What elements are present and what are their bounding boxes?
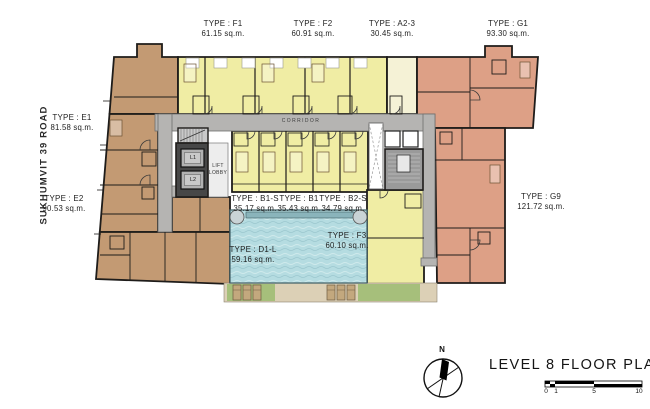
- unit-area: 60.10 sq.m.: [326, 241, 369, 251]
- unit-label-b1-s: TYPE : B1-S35.17 sq.m.: [231, 194, 279, 213]
- scale-bar: [545, 381, 642, 387]
- scale-tick-5: 5: [592, 388, 596, 395]
- unit-type: TYPE : F1: [202, 19, 245, 29]
- north-needle: [440, 359, 450, 381]
- unit-label-b1: TYPE : B135.43 sq.m.: [278, 194, 321, 213]
- landscape-patch: [358, 284, 420, 301]
- unit-type: TYPE : D1-L: [229, 245, 276, 255]
- unit-area: 59.16 sq.m.: [229, 255, 276, 265]
- lift-2-label: L2: [190, 177, 196, 183]
- unit-area: 121.72 sq.m.: [517, 202, 564, 212]
- unit-area: 35.17 sq.m.: [231, 204, 279, 214]
- lift-1-label: L1: [190, 155, 196, 161]
- unit-area: 93.30 sq.m.: [487, 29, 530, 39]
- unit-label-b2-s: TYPE : B2-S34.79 sq.m.: [319, 194, 367, 213]
- unit-label-e2: TYPE : E290.53 sq.m.: [43, 194, 86, 213]
- unit-area: 30.45 sq.m.: [369, 29, 415, 39]
- unit-label-g9: TYPE : G9121.72 sq.m.: [517, 192, 564, 211]
- unit-type: TYPE : F2: [292, 19, 335, 29]
- unit-label-e1: TYPE : E181.58 sq.m.: [51, 113, 94, 132]
- unit-label-f1: TYPE : F161.15 sq.m.: [202, 19, 245, 38]
- unit-type: TYPE : F3: [326, 231, 369, 241]
- page-title: LEVEL 8 FLOOR PLAN: [489, 357, 650, 373]
- lift-lobby-line1: LIFT: [209, 163, 227, 170]
- corridor-label: CORRIDOR: [282, 118, 320, 124]
- lift-lobby-line2: LOBBY: [209, 170, 227, 177]
- scale-tick-0: 0: [544, 388, 548, 395]
- unit-type: TYPE : E2: [43, 194, 86, 204]
- unit-area: 60.91 sq.m.: [292, 29, 335, 39]
- unit-label-g1: TYPE : G193.30 sq.m.: [487, 19, 530, 38]
- unit-type: TYPE : B2-S: [319, 194, 367, 204]
- f3-unit-yellow: [367, 190, 424, 285]
- unit-area: 35.43 sq.m.: [278, 204, 321, 214]
- floor-plan-page: SUKHUMVIT 39 ROAD TYPE : F161.15 sq.m. T…: [0, 0, 650, 409]
- compass-icon: [424, 359, 462, 397]
- unit-type: TYPE : G1: [487, 19, 530, 29]
- north-label: N: [439, 345, 445, 354]
- unit-type: TYPE : B1-S: [231, 194, 279, 204]
- unit-area: 90.53 sq.m.: [43, 204, 86, 214]
- unit-type: TYPE : E1: [51, 113, 94, 123]
- unit-label-a2-3: TYPE : A2-330.45 sq.m.: [369, 19, 415, 38]
- unit-type: TYPE : G9: [517, 192, 564, 202]
- scale-tick-1: 1: [554, 388, 558, 395]
- unit-type: TYPE : A2-3: [369, 19, 415, 29]
- unit-area: 34.79 sq.m.: [319, 204, 367, 214]
- unit-area: 61.15 sq.m.: [202, 29, 245, 39]
- unit-label-f3: TYPE : F360.10 sq.m.: [326, 231, 369, 250]
- unit-label-d1-l: TYPE : D1-L59.16 sq.m.: [229, 245, 276, 264]
- unit-label-f2: TYPE : F260.91 sq.m.: [292, 19, 335, 38]
- scale-tick-10: 10: [635, 388, 642, 395]
- lift-lobby-label: LIFT LOBBY: [209, 163, 227, 177]
- unit-type: TYPE : B1: [278, 194, 321, 204]
- stair-core-right: [369, 123, 423, 190]
- unit-area: 81.58 sq.m.: [51, 123, 94, 133]
